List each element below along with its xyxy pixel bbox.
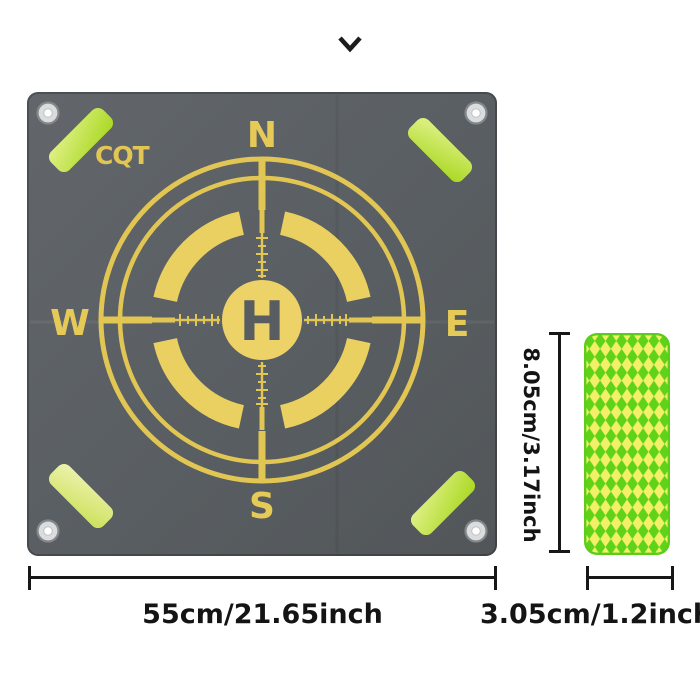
sticker-diamond-pattern <box>584 333 670 555</box>
compass-letter-north: N <box>247 115 277 156</box>
crosshair-west-medium-bar <box>152 318 175 323</box>
dimension-cap-left <box>586 566 589 590</box>
dimension-cap-left <box>28 566 31 590</box>
reflective-sticker <box>584 333 670 555</box>
sticker-width-label: 3.05cm/1.2inch <box>480 599 676 630</box>
crosshair-south-medium-bar <box>260 407 265 430</box>
crosshair-south-thin-line <box>261 362 263 407</box>
chevron-down-icon[interactable] <box>336 33 364 57</box>
sticker-height-dimension-line <box>558 332 561 553</box>
crosshair-east-medium-bar <box>349 318 372 323</box>
grommet-top-left <box>38 103 59 124</box>
grommet-bottom-left <box>38 521 59 542</box>
grommet-top-right <box>466 103 487 124</box>
dimension-cap-bottom <box>549 550 570 553</box>
dimension-cap-right <box>494 566 497 590</box>
crosshair-north-thick-bar <box>259 159 266 210</box>
product-diagram: CQT N E S W <box>0 0 700 700</box>
sticker-height-label: 8.05cm/3.17inch <box>518 340 544 550</box>
dimension-cap-right <box>671 566 674 590</box>
dimension-cap-top <box>549 332 570 335</box>
crosshair-west-thin-line <box>175 319 220 321</box>
pad-width-label: 55cm/21.65inch <box>28 599 497 630</box>
compass-letter-east: E <box>445 304 470 345</box>
crosshair-north-medium-bar <box>260 210 265 233</box>
crosshair-east-thick-bar <box>372 317 423 324</box>
grommet-bottom-right <box>466 521 487 542</box>
helipad-letter: H <box>239 290 284 353</box>
pad-width-dimension-line <box>28 576 497 579</box>
crosshair-north-thin-line <box>261 233 263 278</box>
crosshair-south-thick-bar <box>259 431 266 482</box>
brand-logo: CQT <box>95 141 150 170</box>
landing-pad: CQT N E S W <box>27 92 497 556</box>
crosshair-east-thin-line <box>304 319 349 321</box>
chevron-down-glyph <box>340 38 360 49</box>
compass-letter-south: S <box>249 486 275 527</box>
sticker-width-dimension-line <box>586 576 674 579</box>
compass-letter-west: W <box>50 303 90 344</box>
crosshair-west-thick-bar <box>101 317 152 324</box>
